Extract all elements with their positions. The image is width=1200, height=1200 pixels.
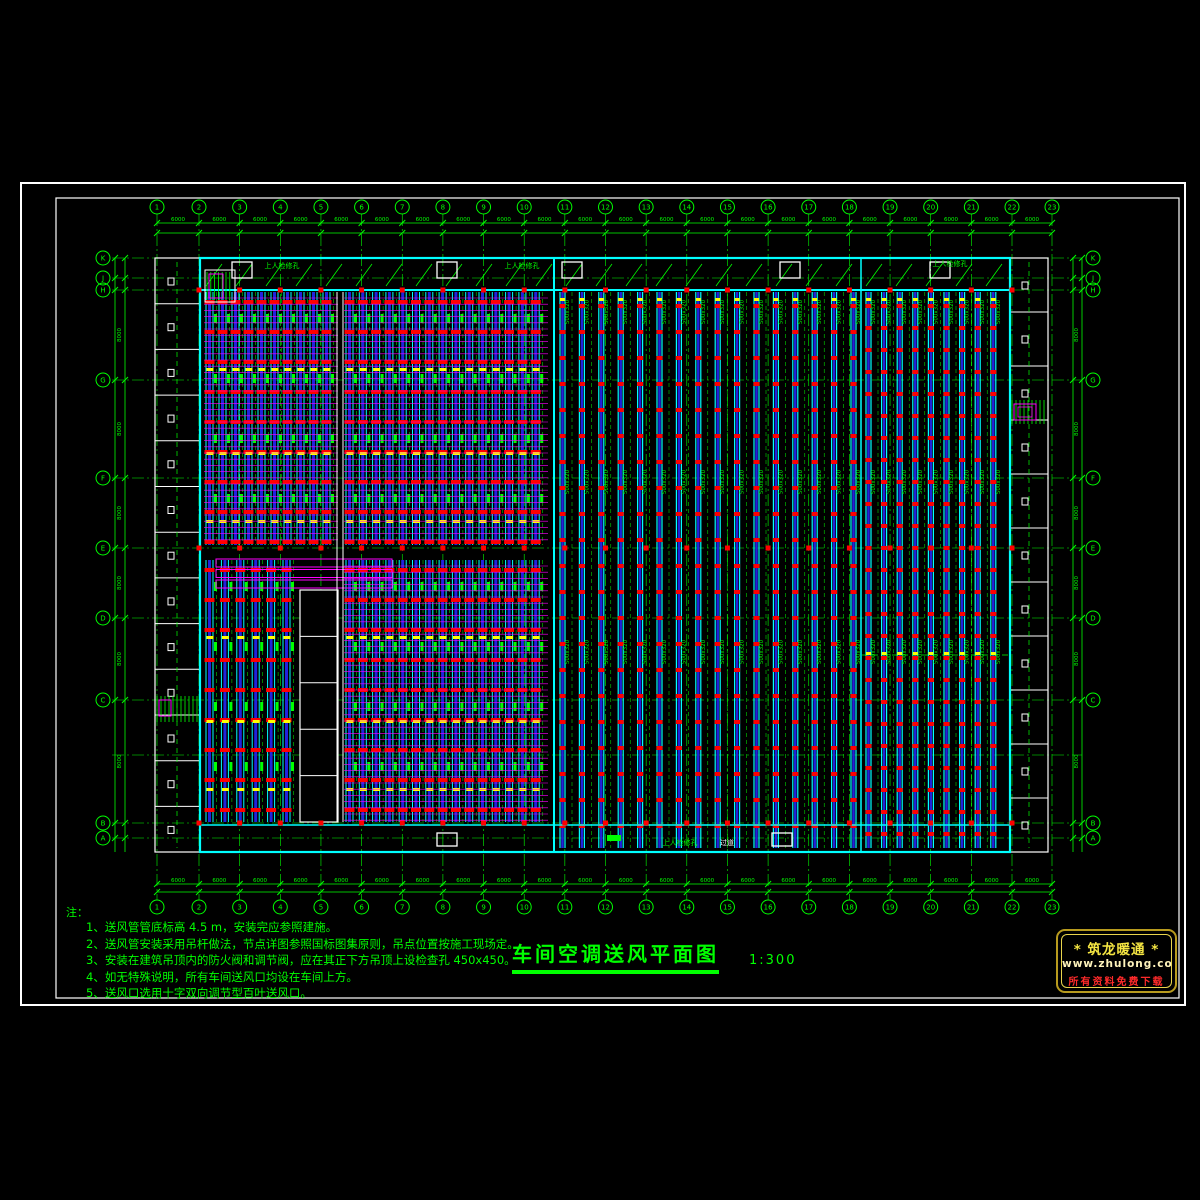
zoneD-damper — [928, 612, 934, 616]
zoneB-lower-yellow-tick — [373, 720, 380, 723]
zoneA-lower-damper — [235, 628, 245, 632]
corridor-branch-line — [806, 264, 822, 286]
dimension-value: 6000 — [294, 217, 308, 223]
zoneC-damper — [618, 330, 624, 334]
dimension-value: 6000 — [171, 878, 185, 884]
zoneD-damper — [990, 392, 996, 396]
zoneA-lower-yellow-tick — [207, 788, 214, 791]
dimension-value: 6000 — [822, 217, 836, 223]
grid-intersection-marker — [969, 821, 974, 826]
zoneD-damper — [912, 436, 918, 440]
zoneC-damper — [812, 382, 818, 386]
zoneB-upper-damper — [345, 300, 355, 304]
zoneC-damper — [831, 538, 837, 542]
zoneB-upper-diffuser-mark — [500, 494, 503, 503]
zoneB-lower-damper — [398, 658, 408, 662]
zoneC-damper — [734, 720, 740, 724]
zoneB-lower-diffuser-mark — [460, 762, 463, 771]
grid-intersection-marker — [725, 288, 730, 293]
zoneC-damper — [792, 408, 798, 412]
zoneC-duct-size-label: 500x320 — [837, 469, 843, 494]
zoneB-upper-damper — [438, 300, 448, 304]
zoneC-damper — [734, 356, 740, 360]
zoneD-duct-size-label: 500x320 — [902, 639, 908, 664]
zoneC-damper — [560, 564, 566, 568]
zoneA-upper-damper — [322, 330, 332, 334]
zoneA-upper-damper — [244, 300, 254, 304]
zoneD-duct-size-label: 500x320 — [933, 299, 939, 324]
zoneC-damper — [579, 590, 585, 594]
zoneB-upper-yellow-tick — [453, 452, 460, 455]
zoneD-duct-size-label: 500x320 — [933, 469, 939, 494]
zoneA-upper-yellow-tick — [246, 368, 253, 371]
zoneB-upper-yellow-tick — [413, 368, 420, 371]
zoneB-upper-damper — [438, 510, 448, 514]
zoneA-upper-damper — [257, 360, 267, 364]
column-grid-label-top: 15 — [723, 204, 732, 212]
zoneD-damper — [866, 458, 872, 462]
dimension-value: 6000 — [1025, 217, 1039, 223]
zoneC-damper — [831, 356, 837, 360]
column-grid-label-top: 19 — [886, 204, 895, 212]
zoneA-lower-damper — [205, 568, 215, 572]
grid-intersection-marker — [237, 546, 242, 551]
column-grid-label-bottom: 11 — [560, 904, 569, 912]
west-room-fixture — [168, 507, 174, 514]
zoneC-damper — [676, 460, 682, 464]
corridor-branch-line — [446, 264, 462, 286]
zoneB-lower-damper — [464, 808, 474, 812]
row-grid-label-left: B — [101, 820, 106, 828]
zoneC-damper — [812, 564, 818, 568]
zoneC-damper — [851, 720, 857, 724]
zoneB-lower-damper — [424, 628, 434, 632]
zoneA-lower-damper — [205, 628, 215, 632]
zoneD-damper — [990, 744, 996, 748]
zoneA-lower-damper — [235, 658, 245, 662]
zoneD-duct-size-label: 500x320 — [887, 469, 893, 494]
grid-intersection-marker — [644, 821, 649, 826]
zhulong-watermark: * 筑龙暖通 * www.zhulong.com 所有资料免费下载 — [1056, 929, 1177, 993]
grid-intersection-marker — [440, 546, 445, 551]
zoneD-damper — [975, 678, 981, 682]
zoneD-damper — [990, 766, 996, 770]
zoneC-damper — [792, 694, 798, 698]
zoneC-damper — [676, 512, 682, 516]
zoneD-damper — [928, 744, 934, 748]
grid-intersection-marker — [888, 546, 893, 551]
zoneA-lower-damper — [220, 748, 230, 752]
zoneA-lower-damper — [235, 778, 245, 782]
zoneB-lower-damper — [411, 778, 421, 782]
zoneA-lower-damper — [251, 688, 261, 692]
zoneC-damper — [851, 356, 857, 360]
zoneB-upper-diffuser-mark — [474, 494, 477, 503]
zoneD-damper — [975, 700, 981, 704]
zoneB-lower-damper — [345, 628, 355, 632]
zoneC-damper — [734, 382, 740, 386]
zoneB-upper-damper — [491, 360, 501, 364]
zoneD-damper — [928, 634, 934, 638]
zoneA-lower-diffuser-mark — [276, 642, 279, 651]
zoneC-damper — [831, 408, 837, 412]
zoneC-damper — [598, 512, 604, 516]
zoneC-duct-size-label: 500x320 — [681, 639, 687, 664]
zoneB-upper-damper — [464, 540, 474, 544]
zoneB-lower-damper — [424, 658, 434, 662]
row-grid-label-left: K — [101, 255, 106, 263]
zoneC-damper — [579, 330, 585, 334]
zoneD-damper — [866, 502, 872, 506]
zoneA-upper-damper — [309, 300, 319, 304]
zoneD-damper — [881, 348, 887, 352]
zoneC-damper — [773, 772, 779, 776]
zoneB-lower-diffuser-mark — [354, 762, 357, 771]
zoneC-damper — [618, 772, 624, 776]
zoneC-duct-size-label: 500x320 — [759, 639, 765, 664]
zoneC-damper — [560, 382, 566, 386]
zoneC-duct-size-label: 500x320 — [604, 299, 610, 324]
zoneD-damper — [959, 634, 965, 638]
zoneB-lower-damper — [345, 598, 355, 602]
zoneB-lower-damper — [371, 748, 381, 752]
zoneC-damper — [598, 590, 604, 594]
zoneC-damper — [695, 538, 701, 542]
zoneB-lower-damper — [451, 778, 461, 782]
zoneB-upper-diffuser-mark — [421, 494, 424, 503]
west-room-fixture — [168, 369, 174, 376]
row-grid-label-left: J — [101, 275, 104, 283]
zoneC-damper — [773, 512, 779, 516]
zoneB-upper-yellow-tick — [347, 368, 354, 371]
zoneB-upper-diffuser-mark — [381, 314, 384, 323]
zoneD-damper — [959, 436, 965, 440]
zoneC-damper — [754, 564, 760, 568]
corridor-branch-line — [206, 264, 222, 286]
zoneC-duct-size-label: 500x320 — [623, 639, 629, 664]
west-room-fixture — [168, 826, 174, 833]
zoneC-damper — [851, 694, 857, 698]
zoneA-lower-diffuser-mark — [229, 642, 232, 651]
zoneC-damper — [812, 720, 818, 724]
east-room-fixture — [1022, 390, 1028, 397]
zoneC-damper — [657, 330, 663, 334]
zoneD-duct-size-label: 500x320 — [949, 469, 955, 494]
zoneD-damper — [959, 414, 965, 418]
zoneA-upper-damper — [231, 480, 241, 484]
zoneC-damper — [637, 408, 643, 412]
zoneB-upper-damper — [424, 360, 434, 364]
zoneA-upper-diffuser-mark — [214, 434, 217, 443]
zoneC-damper — [754, 746, 760, 750]
zoneB-upper-damper — [491, 330, 501, 334]
zoneD-damper — [990, 348, 996, 352]
room-stack-mask — [300, 590, 338, 822]
zoneA-upper-damper — [322, 540, 332, 544]
grid-intersection-marker — [318, 821, 323, 826]
zoneD-damper — [866, 370, 872, 374]
zoneB-upper-damper — [411, 300, 421, 304]
zoneC-duct-size-label: 500x320 — [701, 469, 707, 494]
zoneC-duct-size-label: 500x320 — [643, 469, 649, 494]
zoneB-lower-damper — [384, 598, 394, 602]
zoneD-damper — [990, 810, 996, 814]
zoneA-upper-yellow-tick — [259, 368, 266, 371]
zoneB-lower-diffuser-mark — [407, 582, 410, 591]
note-line-4: 4、如无特殊说明，所有车间送风口均设在车间上方。 — [86, 969, 536, 986]
zoneC-damper — [560, 330, 566, 334]
zoneC-damper — [598, 772, 604, 776]
zoneA-lower-damper — [266, 688, 276, 692]
grid-intersection-marker — [359, 546, 364, 551]
zoneC-damper — [657, 356, 663, 360]
zoneD-damper — [866, 810, 872, 814]
zoneB-lower-yellow-tick — [347, 636, 354, 639]
zoneB-upper-damper — [531, 390, 541, 394]
zoneD-damper — [866, 524, 872, 528]
zoneA-lower-damper — [251, 628, 261, 632]
zoneD-damper — [959, 722, 965, 726]
dimension-value: 6000 — [456, 217, 470, 223]
zoneA-upper-diffuser-mark — [253, 434, 256, 443]
zoneA-upper-damper — [257, 510, 267, 514]
zoneA-lower-diffuser-mark — [260, 762, 263, 771]
zoneA-upper-diffuser-mark — [253, 314, 256, 323]
zoneA-lower-diffuser-mark — [276, 762, 279, 771]
zoneB-upper-diffuser-mark — [381, 434, 384, 443]
zoneC-damper — [560, 512, 566, 516]
zoneD-damper — [881, 524, 887, 528]
zoneC-duct-size-label: 500x320 — [798, 299, 804, 324]
zoneB-lower-damper — [424, 808, 434, 812]
row-grid-label-right: A — [1091, 835, 1096, 843]
zoneB-lower-damper — [371, 778, 381, 782]
zoneD-damper — [897, 678, 903, 682]
zoneA-upper-yellow-tick — [298, 368, 305, 371]
zoneB-upper-damper — [371, 390, 381, 394]
zoneA-lower-diffuser-mark — [229, 582, 232, 591]
row-grid-label-right: K — [1091, 255, 1096, 263]
zoneB-lower-diffuser-mark — [487, 702, 490, 711]
zoneB-lower-damper — [464, 628, 474, 632]
zoneB-upper-diffuser-mark — [500, 314, 503, 323]
zoneB-upper-damper — [411, 330, 421, 334]
zoneA-upper-yellow-tick — [285, 452, 292, 455]
zoneC-damper — [657, 720, 663, 724]
zoneA-upper-damper — [296, 510, 306, 514]
zoneB-lower-damper — [491, 808, 501, 812]
zoneB-lower-diffuser-mark — [434, 702, 437, 711]
zoneC-damper — [812, 798, 818, 802]
zoneC-damper — [792, 460, 798, 464]
dimension-value: 8000 — [1074, 652, 1080, 666]
zoneB-upper-damper — [464, 360, 474, 364]
zoneD-damper — [912, 414, 918, 418]
zoneA-lower-yellow-tick — [222, 788, 229, 791]
zoneB-upper-damper — [358, 510, 368, 514]
zoneC-damper — [715, 512, 721, 516]
zoneC-damper — [560, 434, 566, 438]
zoneB-lower-yellow-tick — [400, 720, 407, 723]
column-grid-label-bottom: 16 — [764, 904, 773, 912]
zoneD-damper — [959, 766, 965, 770]
zoneB-lower-diffuser-mark — [540, 702, 543, 711]
column-grid-label-top: 18 — [845, 204, 854, 212]
zoneB-lower-damper — [491, 778, 501, 782]
zoneB-upper-damper — [531, 360, 541, 364]
zoneB-lower-diffuser-mark — [367, 762, 370, 771]
zoneB-upper-diffuser-mark — [354, 434, 357, 443]
zoneD-damper — [959, 370, 965, 374]
zoneC-damper — [734, 538, 740, 542]
zoneD-damper — [990, 700, 996, 704]
zoneC-damper — [598, 668, 604, 672]
zoneC-damper — [657, 590, 663, 594]
zoneD-damper — [866, 546, 872, 550]
zoneC-damper — [676, 330, 682, 334]
zoneA-lower-damper — [235, 688, 245, 692]
zoneB-upper-yellow-tick — [519, 452, 526, 455]
zoneD-yellow-tick — [991, 652, 996, 655]
zoneB-upper-damper — [478, 480, 488, 484]
zoneA-lower-damper — [266, 658, 276, 662]
column-grid-label-bottom: 13 — [642, 904, 651, 912]
zoneC-damper — [618, 746, 624, 750]
west-room-fixture — [168, 598, 174, 605]
zoneA-upper-diffuser-mark — [227, 314, 230, 323]
zoneD-damper — [959, 348, 965, 352]
drawing-scale: 1:300 — [749, 953, 796, 974]
corridor-branch-line — [236, 264, 252, 286]
zoneB-lower-damper — [517, 748, 527, 752]
floor-opening — [437, 833, 457, 846]
zoneB-lower-diffuser-mark — [447, 762, 450, 771]
dimension-value: 6000 — [578, 217, 592, 223]
zoneC-damper — [715, 382, 721, 386]
zoneA-lower-damper — [266, 748, 276, 752]
zoneD-damper — [975, 722, 981, 726]
dimension-value: 6000 — [212, 217, 226, 223]
dimension-value: 6000 — [903, 878, 917, 884]
dimension-value: 6000 — [985, 217, 999, 223]
zoneA-upper-yellow-tick — [220, 368, 227, 371]
zoneA-lower-damper — [282, 628, 292, 632]
zoneC-damper — [637, 330, 643, 334]
zoneA-upper-yellow-tick — [285, 368, 292, 371]
zoneB-upper-damper — [398, 300, 408, 304]
grid-intersection-marker — [847, 288, 852, 293]
zoneD-damper — [881, 568, 887, 572]
zoneD-damper — [881, 392, 887, 396]
zoneA-upper-damper — [322, 390, 332, 394]
zoneC-damper — [598, 720, 604, 724]
corridor-branch-line — [746, 264, 762, 286]
zoneB-upper-damper — [517, 330, 527, 334]
zoneB-upper-damper — [398, 480, 408, 484]
zoneC-damper — [831, 564, 837, 568]
zoneD-damper — [897, 590, 903, 594]
grid-intersection-marker — [766, 821, 771, 826]
zoneA-lower-diffuser-mark — [245, 582, 248, 591]
column-grid-label-top: 13 — [642, 204, 651, 212]
zoneD-damper — [959, 678, 965, 682]
zoneC-duct-size-label: 500x320 — [681, 469, 687, 494]
zoneB-upper-damper — [464, 480, 474, 484]
zoneB-upper-damper — [384, 360, 394, 364]
zoneB-upper-yellow-tick — [480, 368, 487, 371]
zoneC-damper — [715, 538, 721, 542]
row-grid-label-left: D — [100, 615, 105, 623]
zoneD-damper — [881, 700, 887, 704]
zoneA-lower-diffuser-mark — [291, 642, 294, 651]
column-grid-label-bottom: 14 — [682, 904, 691, 912]
zoneC-damper — [598, 694, 604, 698]
zoneC-damper — [754, 694, 760, 698]
zoneD-damper — [881, 436, 887, 440]
zoneD-damper — [975, 436, 981, 440]
zoneB-lower-diffuser-mark — [527, 582, 530, 591]
row-grid-label-left: G — [100, 377, 105, 385]
zoneD-damper — [897, 612, 903, 616]
zoneB-upper-diffuser-mark — [421, 314, 424, 323]
dimension-value: 8000 — [1074, 506, 1080, 520]
zoneC-damper — [812, 512, 818, 516]
zoneC-duct-size-label: 500x320 — [817, 469, 823, 494]
zoneB-upper-damper — [345, 510, 355, 514]
zoneB-lower-yellow-tick — [440, 720, 447, 723]
zoneB-lower-diffuser-mark — [474, 702, 477, 711]
zoneD-damper — [990, 590, 996, 594]
grid-intersection-marker — [603, 821, 608, 826]
zoneB-lower-diffuser-mark — [407, 702, 410, 711]
zoneA-upper-diffuser-mark — [214, 494, 217, 503]
zoneD-duct-size-label: 500x320 — [965, 639, 971, 664]
zoneC-duct-size-label: 500x320 — [681, 299, 687, 324]
zoneD-damper — [912, 568, 918, 572]
zoneD-damper — [959, 590, 965, 594]
zoneB-upper-damper — [478, 540, 488, 544]
zoneA-upper-damper — [296, 390, 306, 394]
zoneB-upper-yellow-tick — [493, 368, 500, 371]
grid-intersection-marker — [400, 288, 405, 293]
zoneB-lower-damper — [478, 598, 488, 602]
zoneD-yellow-tick — [913, 652, 918, 655]
zoneD-damper — [975, 502, 981, 506]
zoneC-damper — [754, 668, 760, 672]
dimension-value: 6000 — [903, 217, 917, 223]
grid-intersection-marker — [969, 288, 974, 293]
zoneC-damper — [831, 668, 837, 672]
zoneB-upper-diffuser-mark — [540, 434, 543, 443]
zoneD-duct-size-label: 500x320 — [918, 469, 924, 494]
zoneB-upper-damper — [371, 540, 381, 544]
zoneA-lower-damper — [235, 598, 245, 602]
dimension-value: 8000 — [117, 576, 123, 590]
zoneB-lower-damper — [371, 598, 381, 602]
zoneA-upper-diffuser-mark — [331, 494, 334, 503]
grid-intersection-marker — [888, 288, 893, 293]
zoneD-damper — [975, 392, 981, 396]
zoneB-lower-damper — [517, 658, 527, 662]
zoneA-upper-damper — [231, 330, 241, 334]
zoneD-damper — [928, 502, 934, 506]
zoneC-damper — [637, 538, 643, 542]
zoneB-lower-damper — [411, 628, 421, 632]
zoneB-upper-yellow-tick — [493, 452, 500, 455]
dimension-value: 6000 — [497, 217, 511, 223]
zoneD-damper — [928, 436, 934, 440]
zoneC-damper — [637, 382, 643, 386]
